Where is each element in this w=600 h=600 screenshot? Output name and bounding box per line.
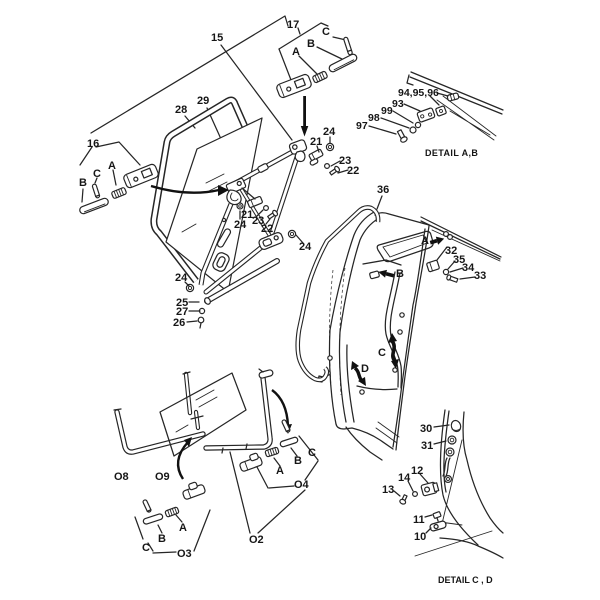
svg-text:94,95,96: 94,95,96 bbox=[398, 87, 439, 99]
svg-text:A: A bbox=[276, 465, 284, 477]
svg-text:A: A bbox=[179, 522, 187, 534]
svg-text:D: D bbox=[361, 363, 369, 375]
svg-text:11: 11 bbox=[413, 514, 425, 526]
svg-text:C: C bbox=[308, 447, 316, 459]
svg-text:12: 12 bbox=[411, 465, 423, 477]
svg-text:A: A bbox=[292, 46, 300, 58]
svg-text:36: 36 bbox=[377, 184, 389, 196]
svg-text:O4: O4 bbox=[294, 479, 310, 491]
svg-text:24: 24 bbox=[323, 126, 336, 138]
svg-text:13: 13 bbox=[382, 484, 394, 496]
svg-text:B: B bbox=[294, 455, 302, 467]
svg-text:C: C bbox=[322, 26, 330, 38]
svg-text:B: B bbox=[307, 38, 315, 50]
svg-text:DETAIL C , D: DETAIL C , D bbox=[438, 575, 493, 585]
svg-text:A: A bbox=[108, 160, 116, 172]
svg-text:29: 29 bbox=[197, 95, 209, 107]
svg-text:24: 24 bbox=[234, 219, 247, 231]
svg-text:DETAIL A,B: DETAIL A,B bbox=[425, 148, 478, 158]
svg-text:28: 28 bbox=[175, 104, 187, 116]
svg-text:22: 22 bbox=[347, 165, 359, 177]
svg-text:98: 98 bbox=[368, 112, 380, 124]
svg-text:97: 97 bbox=[356, 120, 368, 132]
svg-text:C: C bbox=[93, 168, 101, 180]
svg-text:30: 30 bbox=[420, 423, 432, 435]
svg-text:24: 24 bbox=[175, 272, 188, 284]
svg-text:B: B bbox=[158, 533, 166, 545]
svg-text:B: B bbox=[79, 177, 87, 189]
svg-text:A: A bbox=[421, 235, 429, 247]
svg-text:33: 33 bbox=[474, 270, 486, 282]
svg-text:21: 21 bbox=[310, 136, 322, 148]
svg-text:O9: O9 bbox=[155, 471, 170, 483]
svg-text:22: 22 bbox=[261, 223, 273, 235]
svg-text:O3: O3 bbox=[177, 548, 192, 560]
svg-text:O2: O2 bbox=[249, 534, 264, 546]
svg-text:C: C bbox=[142, 542, 150, 554]
svg-text:24: 24 bbox=[299, 241, 312, 253]
svg-text:31: 31 bbox=[421, 440, 433, 452]
svg-text:99: 99 bbox=[381, 105, 393, 117]
svg-text:10: 10 bbox=[414, 531, 426, 543]
svg-text:17: 17 bbox=[287, 19, 299, 31]
svg-text:16: 16 bbox=[87, 138, 99, 150]
svg-text:15: 15 bbox=[211, 32, 223, 44]
svg-text:14: 14 bbox=[398, 472, 411, 484]
svg-text:B: B bbox=[396, 268, 404, 280]
svg-text:O8: O8 bbox=[114, 471, 129, 483]
svg-text:93: 93 bbox=[392, 98, 404, 110]
svg-text:26: 26 bbox=[173, 317, 185, 329]
svg-text:C: C bbox=[378, 347, 386, 359]
